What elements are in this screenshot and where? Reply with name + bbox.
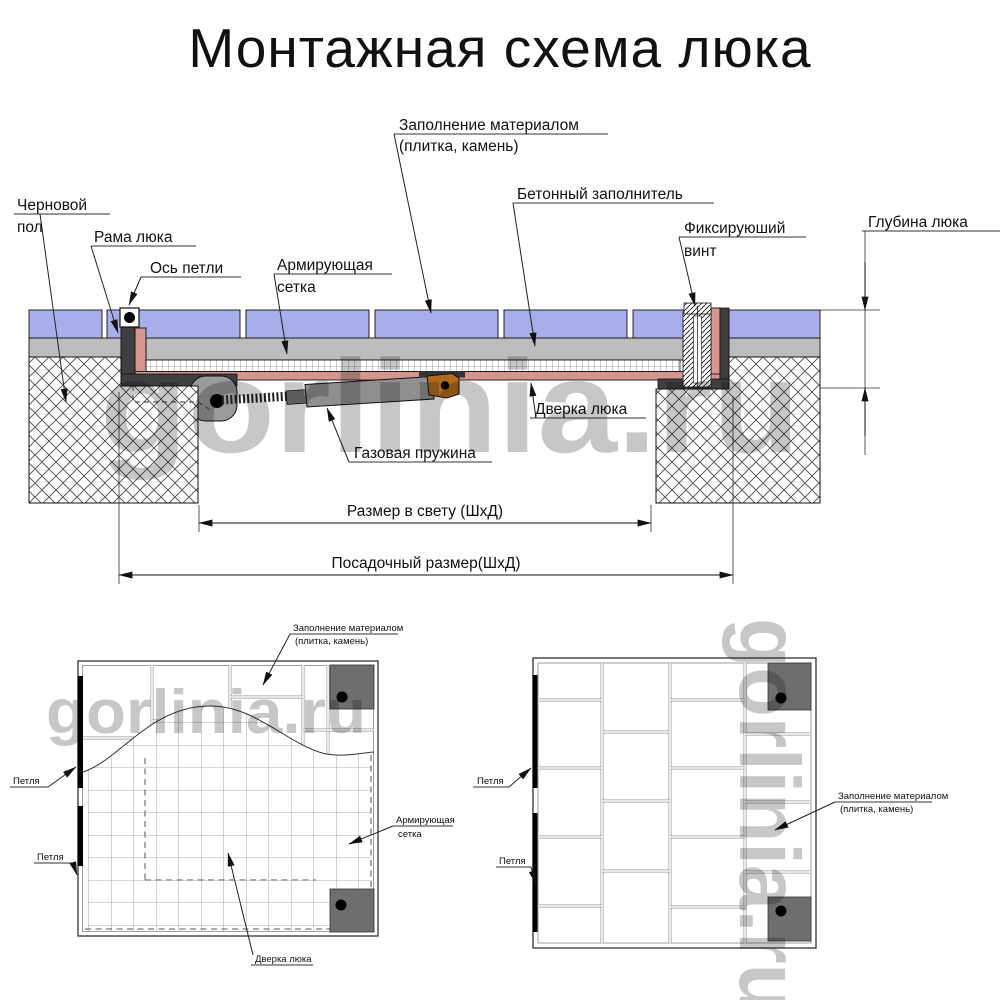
plan-left-callout-hinge-top: Петля <box>10 767 76 787</box>
plan-right-callout-hinge-top: Петля <box>473 768 531 787</box>
rough-floor-label: Черновой <box>17 197 87 214</box>
dimension-depth: Глубина люка <box>820 214 1000 455</box>
plan-left-fill-label: Заполнение материалом <box>293 623 403 634</box>
plan-left-hinge-bottom-label: Петля <box>37 852 64 863</box>
callout-fill-material: Заполнение материалом (плитка, камень) <box>394 117 608 313</box>
hatch-installation-diagram: Размер в свету (ШхД) Посадочный размер(Ш… <box>0 0 1000 1000</box>
fill-material-label-2: (плитка, камень) <box>399 138 519 155</box>
rough-floor-label-2: пол <box>17 219 43 236</box>
plan-left-callout-hinge-bottom: Петля <box>34 852 77 875</box>
plan-left-fill-label-2: (плитка, камень) <box>295 636 368 647</box>
plan-right-fill-label: Заполнение материалом <box>838 791 948 802</box>
watermark-section: gorlinia.ru <box>100 333 800 480</box>
plan-left-hinge-strip-bottom <box>78 806 84 866</box>
page: Монтажная схема люка <box>0 0 1000 1000</box>
plan-left-mesh-label-2: сетка <box>398 829 422 840</box>
plan-left-mesh-label: Армирующая <box>396 815 455 826</box>
watermark-plan-right: gorlinia.ru <box>721 618 816 1000</box>
fixing-screw-label: Фиксируюший <box>684 220 785 237</box>
callout-hinge-axis: Ось петли <box>129 260 241 305</box>
seat-size-label: Посадочный размер(ШхД) <box>331 555 520 572</box>
fixing-screw-label-2: винт <box>684 243 717 260</box>
hinge-axis-label: Ось петли <box>150 260 223 277</box>
plan-left-corner-block-bottom <box>330 889 374 932</box>
depth-label: Глубина люка <box>868 214 968 231</box>
plan-right-hinge-bottom-label: Петля <box>499 856 526 867</box>
plan-left-hinge-top-label: Петля <box>13 776 40 787</box>
plan-view-mesh-side: Заполнение материалом (плитка, камень) П… <box>10 623 455 965</box>
concrete-label: Бетонный заполнитель <box>517 186 683 203</box>
callout-fixing-screw: Фиксируюший винт <box>679 220 806 306</box>
frame-label: Рама люка <box>94 229 173 246</box>
plan-right-hinge-strip-top <box>533 675 538 788</box>
plan-view-tile-side: Петля Петля Заполнение материалом (плитк… <box>473 658 948 948</box>
hinge-axis <box>120 308 139 327</box>
plan-right-hinge-strip-bottom <box>533 813 538 932</box>
clear-size-label: Размер в свету (ШхД) <box>347 503 503 520</box>
dimension-clear-size: Размер в свету (ШхД) <box>199 503 651 532</box>
plan-right-fill-label-2: (плитка, камень) <box>840 804 913 815</box>
mesh-label-2: сетка <box>277 279 316 296</box>
mesh-label: Армирующая <box>277 257 373 274</box>
plan-left-door-label: Дверка люка <box>255 954 312 965</box>
fill-material-label: Заполнение материалом <box>399 117 579 134</box>
plan-right-callout-hinge-bottom: Петля <box>496 856 536 884</box>
plan-right-hinge-top-label: Петля <box>477 776 504 787</box>
watermark-plan-left: gorlinia.ru <box>46 678 366 747</box>
